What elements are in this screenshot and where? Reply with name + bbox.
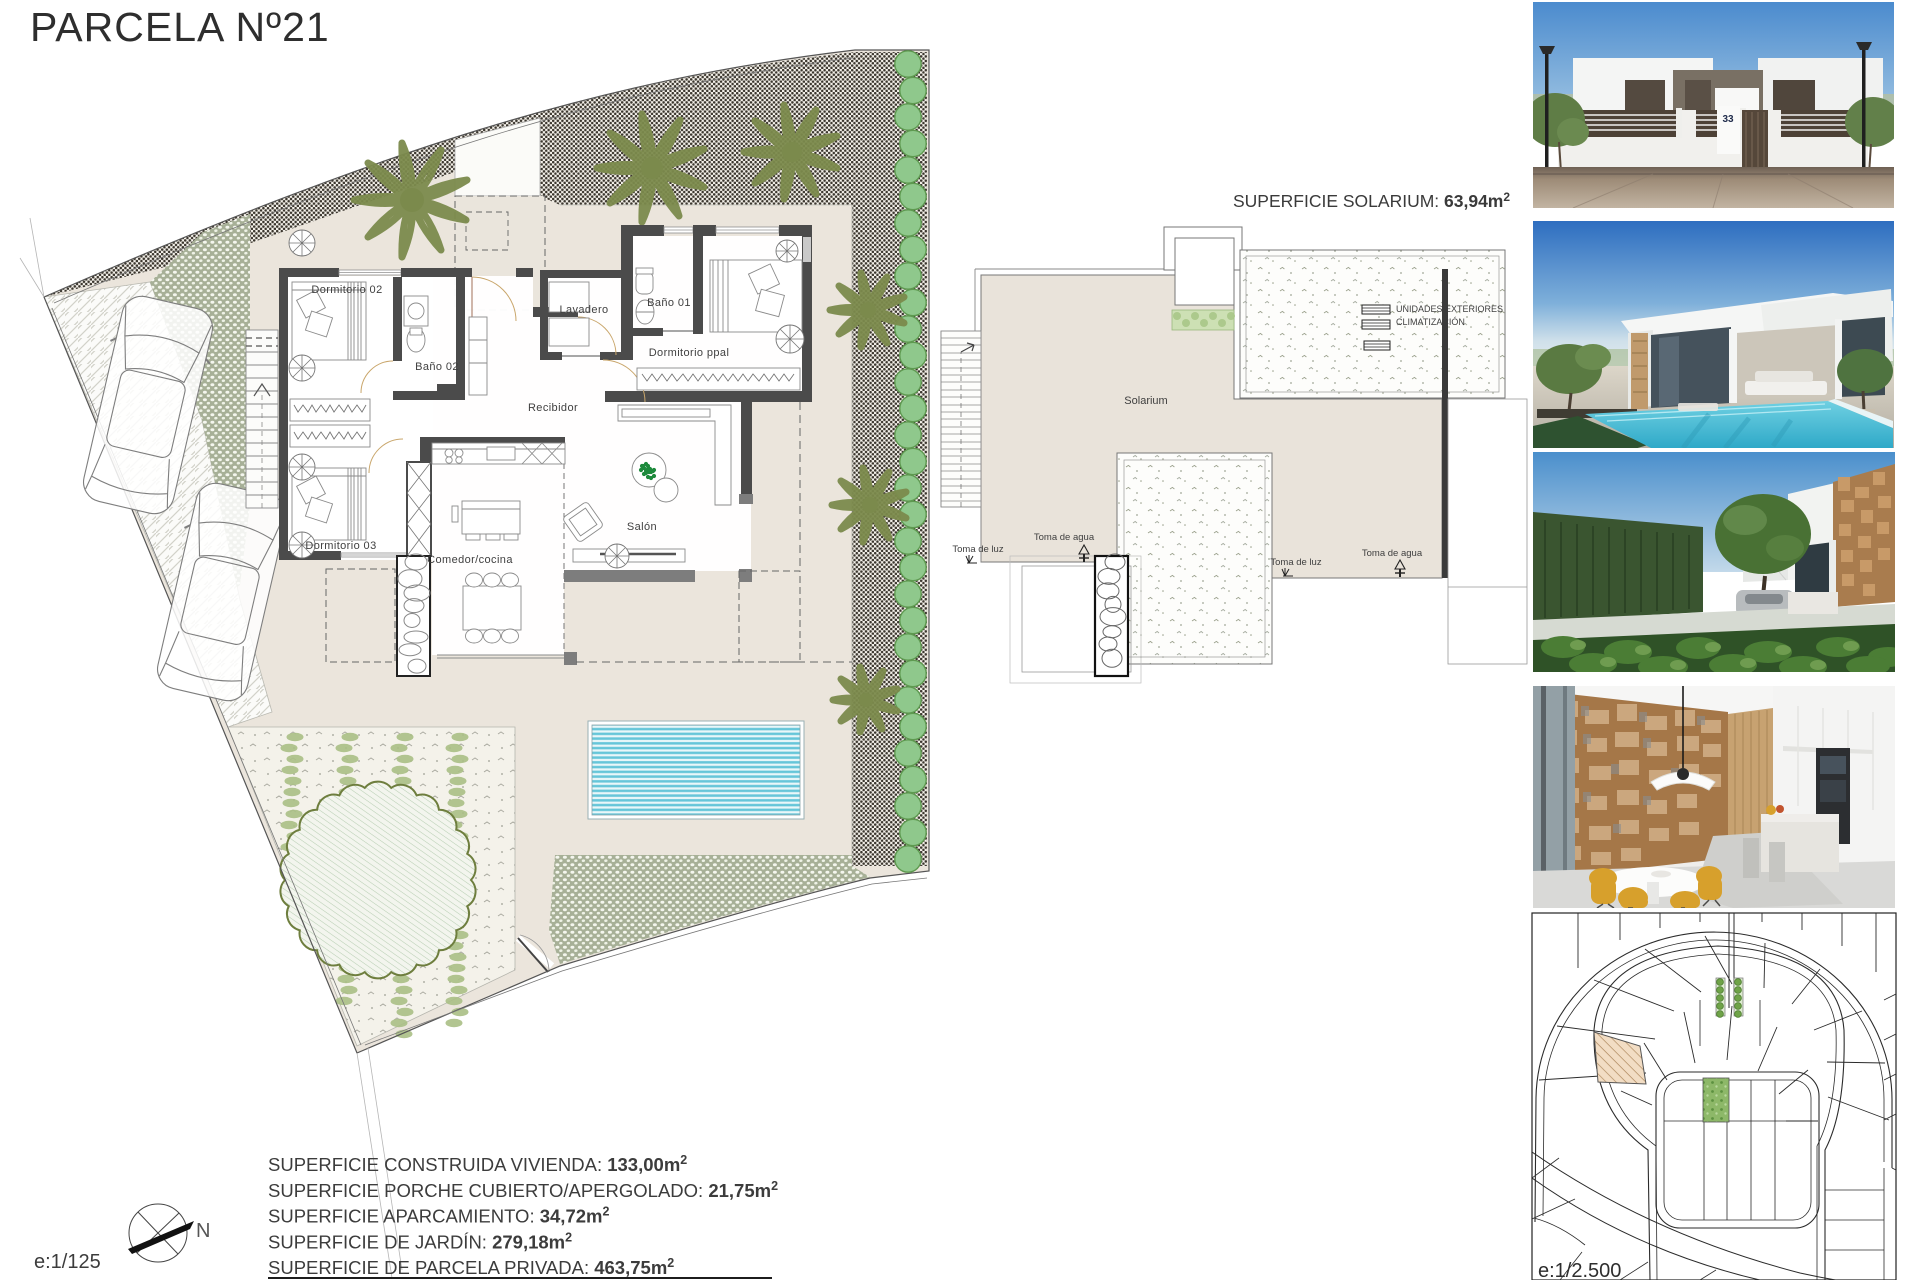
svg-text:Dormitorio 03: Dormitorio 03 bbox=[305, 540, 376, 552]
svg-text:Dormitorio ppal: Dormitorio ppal bbox=[649, 347, 730, 359]
svg-text:Toma de luz: Toma de luz bbox=[1270, 557, 1321, 568]
svg-text:SUPERFICIE DE JARDÍN: 279,18m2: SUPERFICIE DE JARDÍN: 279,18m2 bbox=[268, 1230, 572, 1252]
svg-text:SUPERFICIE SOLARIUM: 63,94m2: SUPERFICIE SOLARIUM: 63,94m2 bbox=[1233, 190, 1510, 211]
svg-text:Comedor/cocina: Comedor/cocina bbox=[427, 554, 513, 566]
svg-text:UNIDADES EXTERIORES: UNIDADES EXTERIORES bbox=[1396, 304, 1503, 314]
svg-text:Toma de agua: Toma de agua bbox=[1034, 532, 1095, 543]
svg-text:Baño 02: Baño 02 bbox=[415, 361, 459, 373]
svg-text:Dormitorio 02: Dormitorio 02 bbox=[311, 284, 382, 296]
svg-text:e:1/2.500: e:1/2.500 bbox=[1538, 1260, 1621, 1280]
svg-text:e:1/125: e:1/125 bbox=[34, 1251, 101, 1273]
svg-text:Salón: Salón bbox=[627, 521, 657, 533]
svg-text:Baño 01: Baño 01 bbox=[647, 297, 691, 309]
svg-text:CLIMATIZACIÓN: CLIMATIZACIÓN bbox=[1396, 317, 1465, 327]
svg-text:PARCELA Nº21: PARCELA Nº21 bbox=[30, 4, 330, 50]
svg-text:SUPERFICIE DE PARCELA PRIVADA:: SUPERFICIE DE PARCELA PRIVADA: 463,75m2 bbox=[268, 1256, 674, 1278]
svg-text:Recibidor: Recibidor bbox=[528, 402, 578, 414]
svg-text:N: N bbox=[196, 1220, 210, 1242]
svg-text:SUPERFICIE APARCAMIENTO: 34,72: SUPERFICIE APARCAMIENTO: 34,72m2 bbox=[268, 1205, 609, 1227]
svg-text:SUPERFICIE PORCHE CUBIERTO/APE: SUPERFICIE PORCHE CUBIERTO/APERGOLADO: 2… bbox=[268, 1179, 778, 1201]
svg-text:33: 33 bbox=[1722, 114, 1734, 125]
svg-text:SUPERFICIE CONSTRUIDA VIVIENDA: SUPERFICIE CONSTRUIDA VIVIENDA: 133,00m2 bbox=[268, 1153, 687, 1175]
svg-text:Toma de agua: Toma de agua bbox=[1362, 548, 1423, 559]
svg-text:Solarium: Solarium bbox=[1124, 395, 1167, 407]
svg-text:Toma de luz: Toma de luz bbox=[952, 544, 1003, 555]
svg-text:Lavadero: Lavadero bbox=[559, 304, 608, 316]
